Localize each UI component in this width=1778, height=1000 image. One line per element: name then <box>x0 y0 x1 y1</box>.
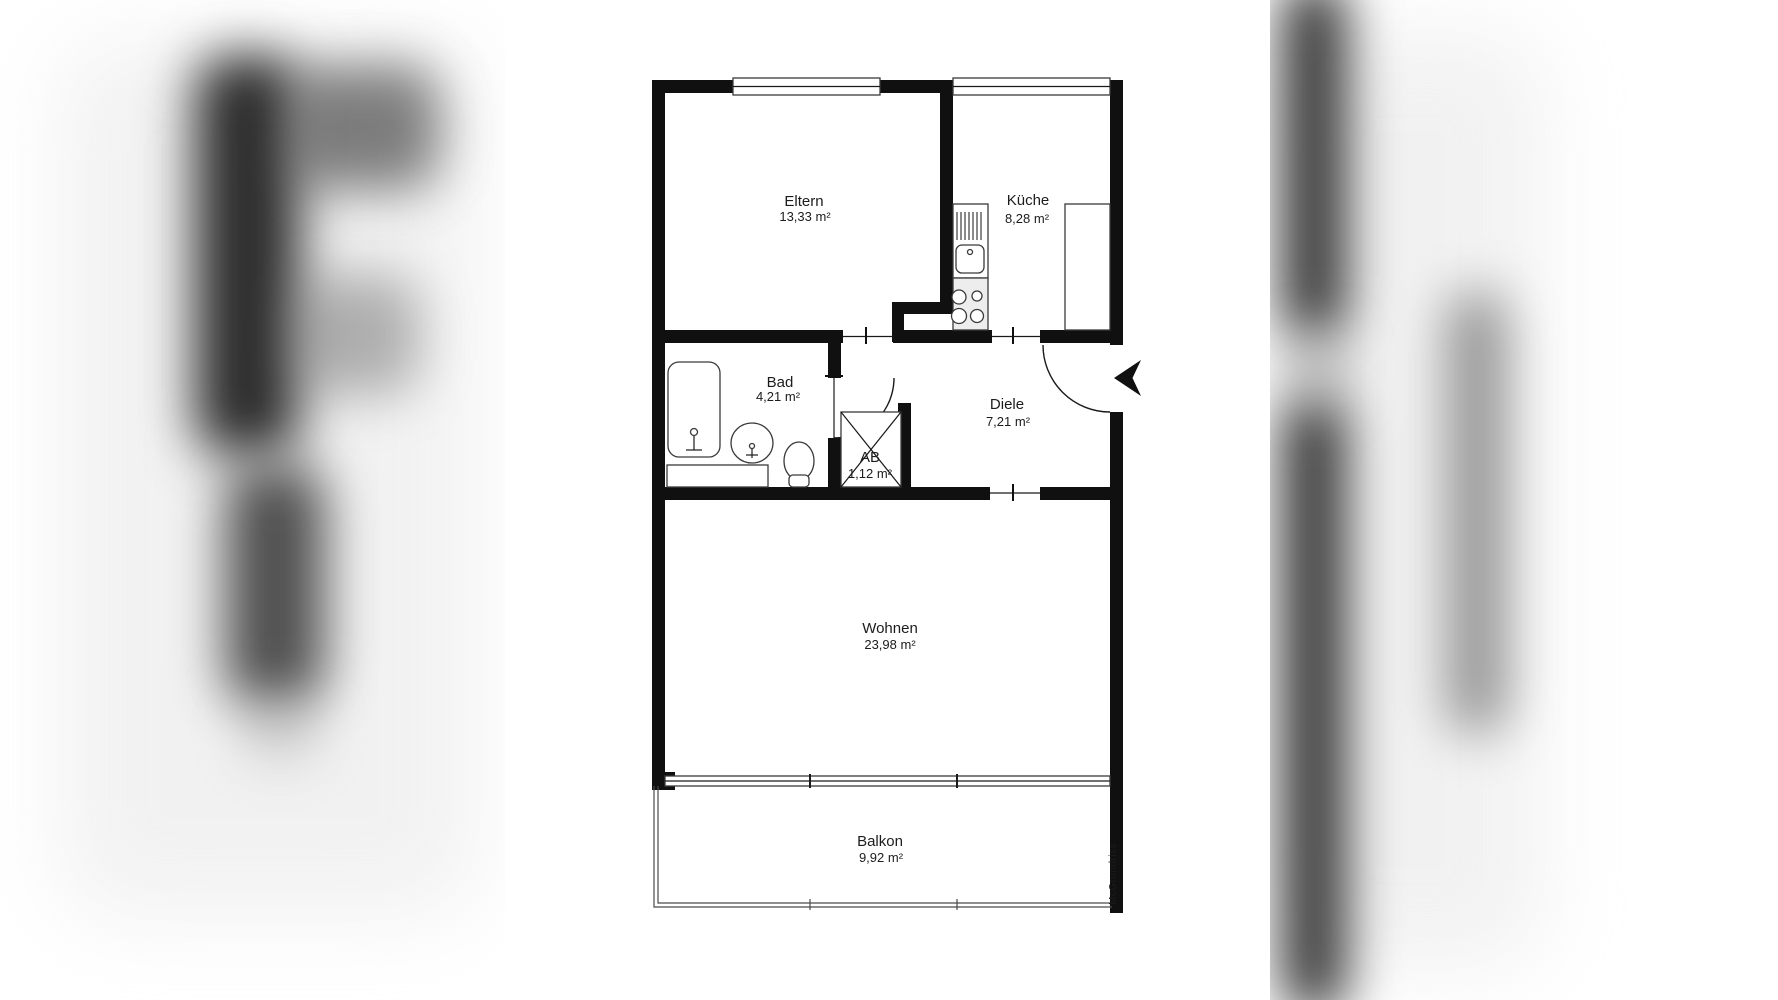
drainboard-lines <box>957 212 981 240</box>
stove-burner <box>952 290 966 304</box>
stove-burner <box>972 291 982 301</box>
wall-segment <box>1040 330 1110 343</box>
room-area-kueche: 8,28 m² <box>1005 211 1050 226</box>
window-divider <box>956 774 958 788</box>
room-label-ab: AB <box>860 449 880 466</box>
room-labels: Eltern 13,33 m² Küche 8,28 m² Bad 4,21 m… <box>756 192 1050 865</box>
entrance-door-arc <box>1043 345 1110 412</box>
room-label-wohnen: Wohnen <box>862 620 918 637</box>
kitchen-counter <box>1065 204 1110 330</box>
room-label-eltern: Eltern <box>784 193 823 210</box>
kitchen-sink-faucet <box>968 250 973 255</box>
wall-segment <box>893 330 992 343</box>
toilet <box>784 442 814 480</box>
room-area-bad: 4,21 m² <box>756 389 801 404</box>
room-area-eltern: 13,33 m² <box>779 209 831 224</box>
room-area-balkon: 9,92 m² <box>859 850 904 865</box>
wall-segment <box>1110 412 1123 913</box>
walls <box>652 80 1123 913</box>
window-divider <box>809 774 811 788</box>
stove-burner <box>971 310 984 323</box>
wall-segment <box>828 342 841 378</box>
bathtub-shelf <box>667 465 768 487</box>
floorplan-image: Eltern 13,33 m² Küche 8,28 m² Bad 4,21 m… <box>0 0 1778 1000</box>
wall-segment <box>1040 487 1110 500</box>
wall-segment <box>1110 80 1123 345</box>
wall-segment <box>828 438 841 487</box>
entrance-arrow <box>1114 360 1141 396</box>
sink-faucet <box>750 444 755 449</box>
bathtub-faucet <box>691 429 698 436</box>
room-label-balkon: Balkon <box>857 833 903 850</box>
wall-segment <box>652 80 665 790</box>
toilet-tank <box>789 475 809 487</box>
opening-tick <box>1012 484 1014 501</box>
room-area-diele: 7,21 m² <box>986 414 1031 429</box>
wall-segment <box>892 302 904 342</box>
wall-segment <box>880 80 953 93</box>
watermark-text: McGrundriss <box>1108 843 1119 905</box>
opening-tick <box>825 375 843 377</box>
opening-tick <box>865 327 867 344</box>
stove-burner <box>952 309 967 324</box>
wall-segment <box>940 93 953 310</box>
room-area-ab: 1,12 m² <box>848 466 893 481</box>
room-label-kueche: Küche <box>1007 192 1050 209</box>
opening-tick <box>1012 327 1014 344</box>
wall-segment <box>652 330 843 343</box>
floorplan-drawing: Eltern 13,33 m² Küche 8,28 m² Bad 4,21 m… <box>0 0 1778 1000</box>
room-area-wohnen: 23,98 m² <box>864 637 916 652</box>
wall-segment <box>652 487 990 500</box>
room-label-diele: Diele <box>990 396 1024 413</box>
